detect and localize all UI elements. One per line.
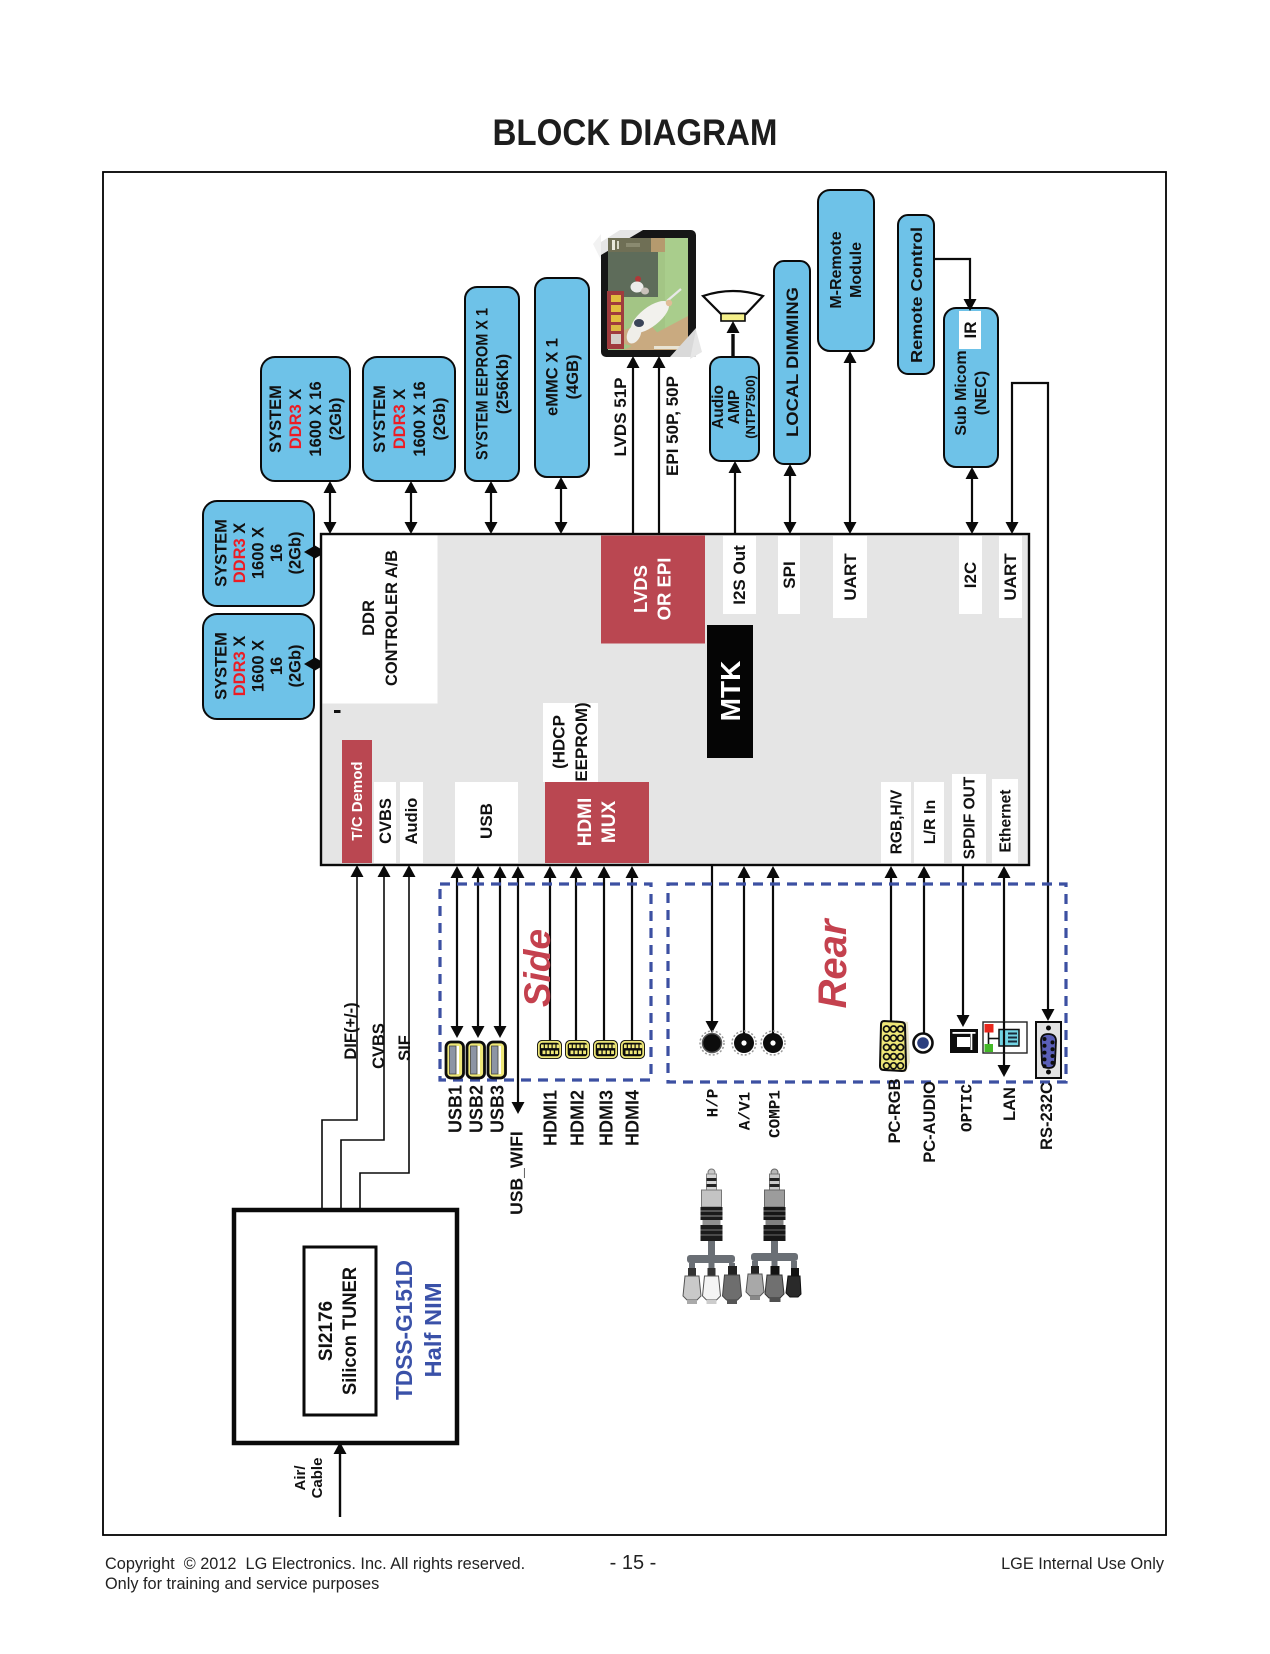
svg-text:USB1: USB1 <box>446 1085 466 1133</box>
svg-text:Side: Side <box>517 929 558 1007</box>
svg-text:HDMI3: HDMI3 <box>597 1090 617 1146</box>
svg-text:HDMI4: HDMI4 <box>623 1090 643 1146</box>
svg-text:Air/Cable: Air/Cable <box>292 1458 326 1499</box>
svg-text:HDMI1: HDMI1 <box>541 1090 561 1146</box>
svg-text:I2C: I2C <box>961 562 980 588</box>
svg-text:HDMI2: HDMI2 <box>568 1090 588 1146</box>
svg-text:Rear: Rear <box>811 917 855 1008</box>
svg-text:T/C Demod: T/C Demod <box>349 761 366 840</box>
svg-text:I2S Out: I2S Out <box>730 545 749 605</box>
svg-text:Ethernet: Ethernet <box>998 790 1015 853</box>
svg-text:IR: IR <box>961 322 980 339</box>
svg-text:LOCAL DIMMING: LOCAL DIMMING <box>784 287 802 437</box>
svg-text:BLOCK DIAGRAM: BLOCK DIAGRAM <box>493 112 778 153</box>
svg-text:USB: USB <box>477 803 496 839</box>
svg-text:CVBS: CVBS <box>370 1023 388 1069</box>
svg-text:LGE Internal Use Only: LGE Internal Use Only <box>1001 1555 1165 1573</box>
svg-text:Audio: Audio <box>403 798 421 845</box>
svg-text:LAN: LAN <box>1001 1087 1019 1121</box>
svg-text:H/P: H/P <box>705 1089 723 1118</box>
svg-text:PC-AUDIO: PC-AUDIO <box>921 1081 939 1163</box>
svg-text:- 15 -: - 15 - <box>610 1552 657 1574</box>
svg-text:USB_WIFI: USB_WIFI <box>507 1131 527 1215</box>
svg-text:USB3: USB3 <box>488 1085 508 1133</box>
svg-text:MTK: MTK <box>715 661 746 722</box>
svg-text:Remote Control: Remote Control <box>909 227 926 363</box>
svg-text:PC-RGB: PC-RGB <box>886 1078 904 1143</box>
svg-text:SIF: SIF <box>396 1035 414 1061</box>
svg-text:RS-232C: RS-232C <box>1038 1082 1056 1150</box>
svg-text:L/R In: L/R In <box>922 800 939 844</box>
svg-text:Copyright © 2012 LG Electron: Copyright © 2012 LG Electronics. Inc. Al… <box>105 1555 525 1573</box>
svg-text:EPI 50P, 50P: EPI 50P, 50P <box>663 376 682 476</box>
svg-text:COMP1: COMP1 <box>767 1090 785 1138</box>
svg-text:LVDS 51P: LVDS 51P <box>611 377 630 456</box>
svg-text:Only for training and service: Only for training and service purposes <box>105 1575 379 1593</box>
svg-text:OPTIC: OPTIC <box>959 1084 977 1132</box>
svg-text:SPI: SPI <box>780 561 799 588</box>
svg-text:RGB,H/V: RGB,H/V <box>889 789 906 854</box>
svg-text:USB2: USB2 <box>467 1085 487 1133</box>
svg-text:UART: UART <box>1001 553 1020 601</box>
svg-text:A/V1: A/V1 <box>737 1092 755 1130</box>
svg-text:UART: UART <box>841 553 860 601</box>
svg-text:SPDIF OUT: SPDIF OUT <box>962 776 979 859</box>
svg-text:CVBS: CVBS <box>377 798 395 844</box>
svg-text:DIF(+/-): DIF(+/-) <box>342 1002 360 1059</box>
